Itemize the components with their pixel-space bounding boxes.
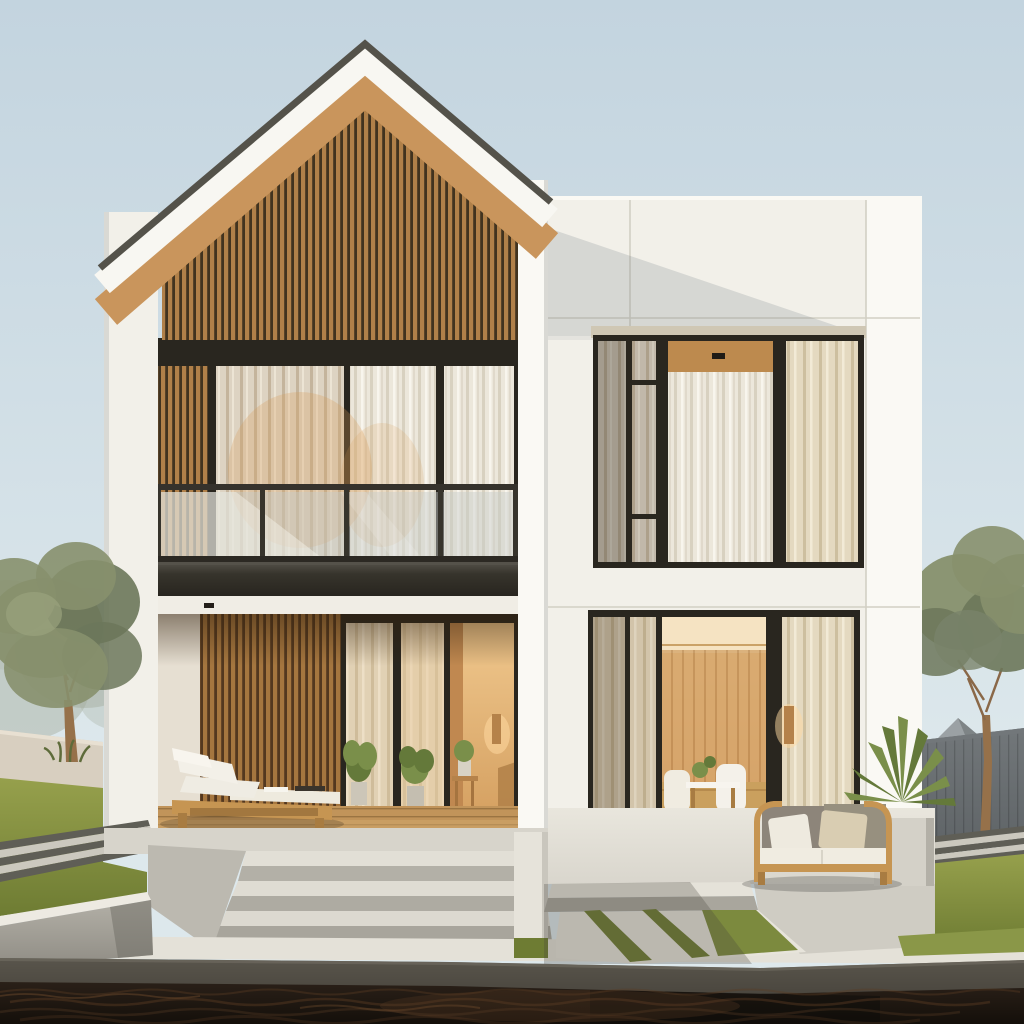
porch-shadow — [158, 614, 518, 666]
curtain-pane-right — [786, 341, 858, 562]
step-riser — [226, 896, 548, 911]
step-tread — [242, 851, 542, 866]
balcony-bottom-rail — [156, 556, 520, 562]
floor-slab — [142, 562, 520, 596]
outdoor-sofa — [742, 804, 902, 892]
house-exterior-rendering — [0, 0, 1024, 1024]
wall-sconce — [775, 704, 803, 748]
rendering-canvas — [0, 0, 1024, 1024]
interior-sconce — [492, 714, 501, 744]
balcony — [156, 484, 520, 562]
balcony-top-rail — [156, 484, 520, 490]
plant-stand — [452, 776, 478, 781]
dining-table — [686, 782, 740, 788]
step-tread — [220, 911, 550, 926]
interior-ceiling — [662, 617, 766, 653]
right-upper-window — [591, 326, 866, 568]
ceiling-vent — [204, 603, 214, 608]
dining-room-interior — [662, 617, 766, 813]
porch — [158, 596, 519, 833]
right-lower-window — [588, 610, 860, 820]
grass-wedge — [514, 938, 548, 958]
curtain-pane-center — [668, 341, 773, 562]
right-pier — [518, 180, 548, 832]
sofa-pillow-beige — [818, 810, 868, 853]
sofa-rail — [754, 864, 892, 872]
step-riser — [238, 866, 544, 881]
chaise-tray — [295, 786, 325, 791]
vent-detail — [712, 353, 725, 359]
dining-chair-left — [664, 770, 690, 812]
step-tread — [232, 881, 546, 896]
right-wing — [545, 196, 922, 830]
